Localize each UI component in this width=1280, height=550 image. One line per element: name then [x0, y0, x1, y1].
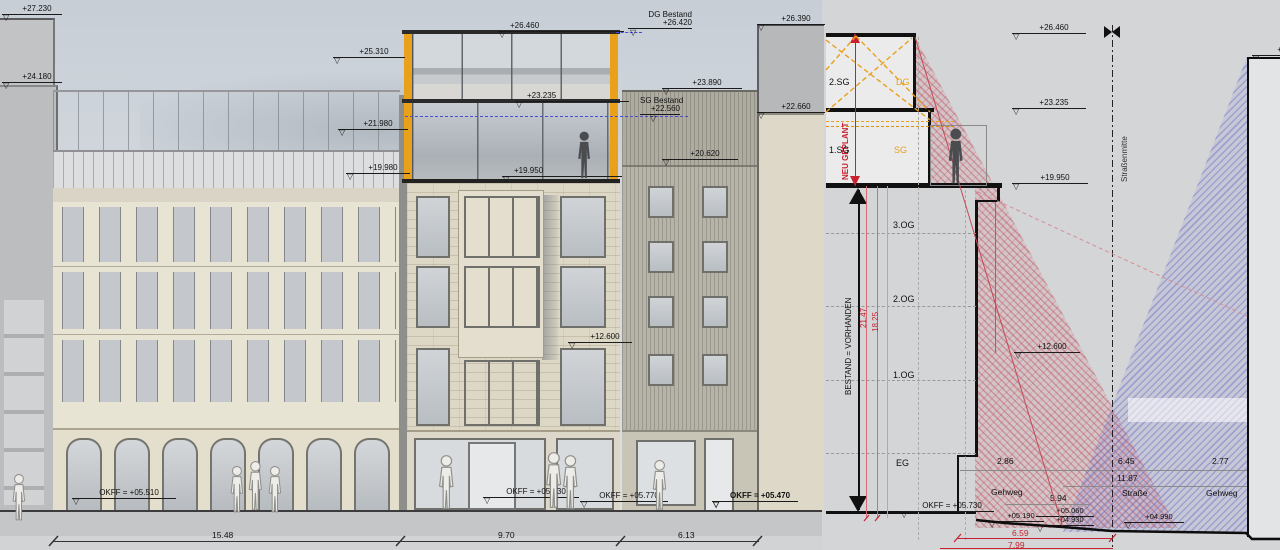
elevation-marker: ▽ +23.235	[515, 91, 629, 102]
red-dim-value-21-47: 21.47	[859, 288, 868, 328]
red-dim-line-1	[957, 538, 1113, 539]
elevation-value: +23.890	[692, 78, 721, 87]
window	[464, 266, 540, 328]
level-triangle-icon: ▽	[499, 31, 505, 39]
red-dim-18-25-line	[877, 186, 878, 518]
elevation-value: +23.235	[527, 91, 556, 100]
shop-door	[468, 442, 516, 510]
elevation-marker: ▽ +12.600	[568, 332, 632, 343]
neu-geplant-label: NEU GEPLANT	[841, 108, 850, 180]
window	[702, 296, 728, 328]
window	[560, 196, 606, 258]
elevation-marker: ▽ +23.235	[1012, 98, 1086, 109]
street-dim-gehweg-left: 2.86	[997, 456, 1014, 466]
elevation-value: +04.990	[1145, 512, 1172, 521]
elevation-marker: ▽ +20.620	[662, 149, 738, 160]
elevation-value: OKFF = +05.770	[599, 491, 659, 500]
elevation-value: +12.600	[590, 332, 619, 341]
building-b-stringcourse-1	[53, 266, 400, 267]
wall-2sg	[913, 37, 916, 108]
roof-slab	[826, 33, 916, 37]
floor-dashed-3og	[826, 233, 976, 234]
elevation-value: +04.930	[1056, 515, 1083, 524]
red-dim-value-7-99: 7.99	[1008, 540, 1025, 550]
elevation-value: OKFF = +05.470	[730, 491, 790, 500]
building-a-window	[4, 300, 44, 505]
elevation-value: +27.230	[22, 4, 51, 13]
elevation-value: OKFF = +05.510	[99, 488, 159, 497]
level-triangle-icon: ▽	[758, 112, 764, 120]
sg-bestand-marker: SG Bestand +22.560 ▽	[640, 97, 680, 115]
okff-marker: ▽ OKFF = +05.770	[580, 491, 668, 502]
elevation-value: +20.620	[690, 149, 719, 158]
dimension-value: 6.13	[678, 530, 695, 540]
floor-label-1sg: 1.SG	[829, 145, 850, 155]
dimension-value: 15.48	[212, 530, 233, 540]
okff-marker: ▽ OKFF = +05.510	[72, 488, 176, 499]
level-triangle-icon: ▽	[569, 342, 575, 350]
building-b-stringcourse-2	[53, 334, 400, 335]
window	[464, 360, 540, 426]
window	[416, 196, 450, 258]
elevation-marker: ▽ +26.460	[1012, 23, 1086, 34]
red-dim-value-6-59: 6.59	[1012, 528, 1029, 538]
sg-bestand-dashed-line	[405, 116, 688, 117]
floor-label-1og: 1.OG	[893, 370, 915, 380]
street-line-top	[960, 470, 1280, 471]
street-centerline	[1112, 25, 1113, 548]
level-triangle-icon: ▽	[1013, 33, 1019, 41]
street-label-gehweg-right: Gehweg	[1206, 488, 1238, 498]
arcade-window	[306, 438, 342, 512]
window	[702, 241, 728, 273]
elevation-value: +25.310	[359, 47, 388, 56]
vert-dashed-1	[918, 37, 919, 540]
section-right-building	[1247, 57, 1280, 537]
level-triangle-icon: ▽	[1037, 525, 1043, 533]
dimension-value: 9.70	[498, 530, 515, 540]
elevation-marker: ▽ +21.980	[338, 119, 408, 130]
bestand-label: BESTAND = VORHANDEN	[844, 283, 853, 395]
window	[648, 241, 674, 273]
elevation-value: +23.235	[1039, 98, 1068, 107]
dg-bestand-dashed-line	[616, 32, 642, 33]
arcade-window	[354, 438, 390, 512]
neu-geplant-dim-line	[855, 38, 856, 186]
window	[702, 186, 728, 218]
red-arrow-up	[850, 33, 860, 43]
street-dim-half: 5.94	[1050, 493, 1067, 503]
okff-marker: ▽ OKFF = +05.470	[712, 491, 798, 502]
okff-marker: ▽ OKFF = +05.730	[483, 487, 579, 498]
floor-label-2og: 2.OG	[893, 294, 915, 304]
elevation-value: +22.560	[640, 105, 680, 115]
elevation-marker: ▽ +19.950	[502, 166, 622, 177]
window	[560, 266, 606, 328]
level-triangle-icon: ▽	[3, 14, 9, 22]
floor-label-eg: EG	[896, 458, 909, 468]
level-triangle-icon: ▽	[339, 129, 345, 137]
arcade-window	[162, 438, 198, 512]
window	[560, 348, 606, 426]
vert-dashed-2	[965, 190, 966, 540]
facade-wall-section	[975, 200, 978, 457]
arcade-window	[66, 438, 102, 512]
section-room-2sg	[826, 37, 915, 108]
elevation-value: +26.390	[781, 14, 810, 23]
street-label-gehweg-left: Gehweg	[991, 487, 1023, 497]
elevation-value: +24.180	[22, 72, 51, 81]
balcony-outline	[930, 125, 987, 186]
level-triangle-icon: ▽	[758, 24, 764, 32]
street-dim-gehweg-right: 2.77	[1212, 456, 1229, 466]
street-dim-width: 11.87	[1117, 473, 1138, 483]
elevation-marker: ▽ +19.980	[346, 163, 410, 174]
elevation-value: +22.660	[781, 102, 810, 111]
building-b-windows-f3	[62, 207, 396, 262]
elevation-marker: ▽ +04.990	[1124, 512, 1184, 523]
blue-hatch-light-band	[1128, 398, 1247, 422]
elevation-value: +19.950	[1040, 173, 1069, 182]
floor-dashed-eg	[826, 453, 976, 454]
level-triangle-icon: ▽	[650, 115, 656, 123]
level-triangle-icon: ▽	[630, 29, 636, 37]
arcade-window	[210, 438, 246, 512]
elevation-marker: ▽ +23.890	[662, 78, 742, 89]
elevation-marker: ▽ +26.390	[757, 14, 825, 25]
red-dim-aux-line	[887, 186, 888, 518]
level-triangle-icon: ▽	[73, 498, 79, 506]
window	[416, 348, 450, 426]
street-dim-strasse-half: 6.45	[1118, 456, 1135, 466]
window	[702, 354, 728, 386]
floor-label-2sg: 2.SG	[829, 77, 850, 87]
elevation-value: +26.420	[628, 19, 692, 29]
level-triangle-icon: ▽	[334, 57, 340, 65]
building-d-facade	[622, 165, 757, 432]
penthouse-orange-right-upper	[610, 33, 618, 100]
elevation-value: +19.980	[368, 163, 397, 172]
building-b-windows-f1	[62, 340, 396, 402]
window	[648, 186, 674, 218]
elevation-value: +21.980	[363, 119, 392, 128]
level-triangle-icon: ▽	[713, 501, 719, 509]
roof-label-dg: DG	[896, 77, 910, 87]
level-triangle-icon: ▽	[1013, 183, 1019, 191]
elevation-value: +12.600	[1037, 342, 1066, 351]
level-triangle-icon: ▽	[663, 88, 669, 96]
roof-label-sg: SG	[894, 145, 907, 155]
arcade-window	[114, 438, 150, 512]
level-triangle-icon: ▽	[901, 511, 907, 519]
arcade-window	[258, 438, 294, 512]
window	[648, 354, 674, 386]
elevation-value: OKFF = +05.730	[506, 487, 566, 496]
elevation-marker: ▽ +12.600	[1014, 342, 1080, 353]
bay-depth-line	[995, 202, 996, 353]
ground-strip	[0, 536, 822, 550]
red-dim-value-18-25: 18.25	[871, 292, 880, 332]
elevation-value: +05.190	[1007, 511, 1034, 520]
window	[464, 196, 540, 258]
dimension-line	[53, 541, 759, 542]
elevation-marker: ▽ +22.660	[757, 102, 825, 113]
level-triangle-icon: ▽	[663, 159, 669, 167]
elevation-value: OKFF = +05.730	[922, 501, 982, 510]
red-arrow-down	[850, 176, 860, 186]
street-line-small	[1005, 504, 1090, 505]
black-arrow-up	[849, 188, 867, 204]
elevation-marker: ▽ +25.310	[333, 47, 405, 58]
level-triangle-icon: ▽	[1015, 352, 1021, 360]
okff-marker: ▽ OKFF = +05.730	[900, 501, 994, 512]
red-dim-21-47-line	[866, 186, 867, 518]
elevation-marker: ▽ +04.930	[1036, 515, 1094, 526]
elevation-value: +19.950	[514, 166, 543, 175]
penthouse-orange-left-upper	[404, 33, 412, 100]
elevation-value: +05.060	[1056, 506, 1083, 515]
red-dim-line-2	[940, 548, 1113, 549]
bay-window-shadow	[542, 195, 558, 360]
dg-bestand-marker: DG Bestand +26.420 ▽	[628, 11, 692, 29]
strassenmitte-label: Straßenmitte	[1120, 100, 1129, 182]
level-triangle-icon: ▽	[503, 176, 509, 184]
building-e-wall	[757, 113, 824, 514]
level-triangle-icon: ▽	[347, 173, 353, 181]
level-triangle-icon: ▽	[484, 497, 490, 505]
black-arrow-down	[849, 496, 867, 512]
cornice-bottom	[975, 200, 1000, 202]
elevation-value: +26.460	[1039, 23, 1068, 32]
elevation-marker: ▽ +26.460	[498, 21, 624, 32]
building-b-windows-f2	[62, 272, 396, 329]
window	[648, 296, 674, 328]
architectural-drawing: ▽ +27.230 ▽ +24.180 ▽ +25.310 ▽ +21.980 …	[0, 0, 1280, 550]
street-label-strasse: Straße	[1122, 488, 1148, 498]
sidewalk	[0, 510, 822, 538]
bestand-dim-line	[858, 190, 860, 510]
level-triangle-icon: ▽	[3, 82, 9, 90]
level-triangle-icon: ▽	[516, 101, 522, 109]
window	[416, 266, 450, 328]
elevation-value: +26.460	[510, 21, 539, 30]
level-triangle-icon: ▽	[1125, 522, 1131, 530]
level-triangle-icon: ▽	[989, 521, 995, 529]
floor-label-3og: 3.OG	[893, 220, 915, 230]
penthouse-upper-mullions	[412, 33, 610, 100]
elevation-marker: ▽ +24.180	[2, 72, 62, 83]
elevation-marker: ▽ +19.950	[1012, 173, 1088, 184]
elevation-marker: ▽ +27.230	[2, 4, 62, 15]
level-triangle-icon: ▽	[1013, 108, 1019, 116]
elevation-marker: ▽ +25	[1252, 45, 1280, 56]
storefront-step-h	[957, 455, 978, 457]
level-triangle-icon: ▽	[581, 501, 587, 509]
